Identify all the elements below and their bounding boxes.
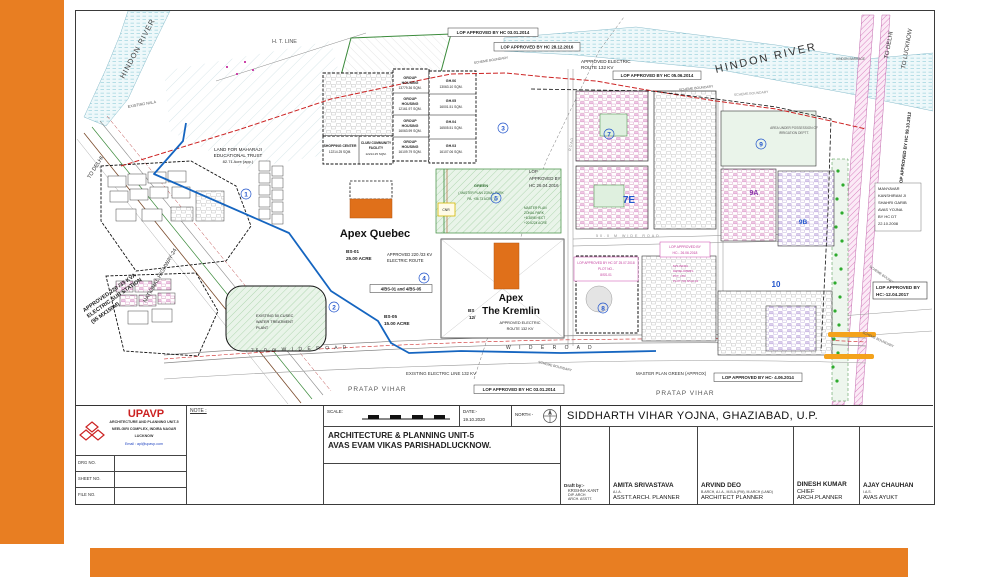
- lop-bottom2-label: LOP APPROVED BY HC- 4.06.2014: [714, 373, 802, 382]
- apex-quebec-plot: [350, 181, 392, 218]
- staff-role: CHIEF ARCH.PLANNER: [797, 489, 857, 501]
- svg-text:PA. +36.73 ACRE ): PA. +36.73 ACRE ): [467, 197, 494, 201]
- svg-text:4: 4: [422, 276, 426, 283]
- zonal-park-label: MASTER PLAN ZONAL PARK +8.3898 HECT +20.…: [524, 206, 547, 225]
- north-arrow-icon: [542, 408, 558, 424]
- svg-text:16063.99 SQM.: 16063.99 SQM.: [398, 129, 421, 133]
- svg-text:LOP APPROVED BY: LOP APPROVED BY: [669, 245, 702, 249]
- sector7-grid: [576, 91, 648, 161]
- staff-role: AVAS AYUKT: [863, 495, 931, 501]
- ht-line-label: H. T. LINE: [272, 39, 297, 45]
- svg-text:7: 7: [607, 132, 611, 139]
- svg-text:ROUTE 132 KV: ROUTE 132 KV: [507, 327, 534, 331]
- svg-text:WATER TREATMENT: WATER TREATMENT: [256, 320, 294, 324]
- svg-text:KANSHIRAM JI: KANSHIRAM JI: [878, 193, 906, 198]
- bs-combo-label: 4/BS-01 and 4/BS-05: [370, 285, 432, 293]
- sector9b-grid: [778, 171, 834, 246]
- manyavar-label: MANYAVAR KANSHIRAM JI SHAHRI GARIB AVAS …: [875, 183, 921, 231]
- org-line1: ARCHITECTURE AND PLANNING UNIT-5: [102, 421, 186, 425]
- site-plan-map: HINDON RIVER HINDON RIVER H. T. LINE EXI…: [76, 11, 933, 405]
- svg-text:EDUCATIONAL TRUST: EDUCATIONAL TRUST: [214, 153, 263, 158]
- svg-text:PVT. LTD: PVT. LTD: [673, 274, 686, 278]
- staff-name: DINESH KUMAR: [797, 481, 857, 488]
- road-vert-label: R O A D: [568, 137, 574, 151]
- svg-text:LOP APPROVED BY HC 03.01.2014: LOP APPROVED BY HC 03.01.2014: [457, 30, 530, 35]
- lop-approved-top3: LOP APPROVED BY HC 05.06.2014: [613, 71, 701, 80]
- svg-text:BS: BS: [468, 308, 474, 313]
- staff-name: AMITA SRIVASTAVA: [613, 482, 695, 489]
- to-delhi-left-label: TO DELHI: [87, 155, 106, 180]
- svg-text:HOUSING: HOUSING: [402, 81, 419, 85]
- svg-text:APPROVED ELECTRIC: APPROVED ELECTRIC: [500, 321, 541, 325]
- route220-label: APPROVED 220 /33 KV ELECTRIC ROUTE: [387, 252, 432, 263]
- scale-bar: [360, 412, 452, 422]
- slide: { "slide": { "accent_color": "#E87E22" }…: [0, 0, 1000, 577]
- svg-text:SHAHRI GARIB: SHAHRI GARIB: [878, 200, 907, 205]
- scheme-boundary-label-3: SCHEME BOUNDARY: [734, 90, 770, 97]
- staff-quals: I.A.S.: [863, 490, 931, 494]
- svg-text:13779.36 SQM.: 13779.36 SQM.: [398, 86, 421, 90]
- svg-text:10: 10: [772, 280, 781, 289]
- bs05-label: BS-05 15.00 ACRE: [384, 314, 410, 326]
- svg-text:LAND FOR MAHARAJI: LAND FOR MAHARAJI: [214, 147, 262, 152]
- site-plan-svg: HINDON RIVER HINDON RIVER H. T. LINE EXI…: [76, 11, 933, 405]
- svg-text:PLOT NO.8/GH-01: PLOT NO.8/GH-01: [673, 279, 699, 283]
- svg-text:12214.25 SQM.: 12214.25 SQM.: [365, 152, 386, 156]
- svg-text:HOUSING: HOUSING: [402, 102, 419, 106]
- svg-text:9A: 9A: [750, 190, 759, 197]
- svg-text:16107.06 SQM.: 16107.06 SQM.: [439, 150, 462, 154]
- svg-text:82.71 Acre (app.): 82.71 Acre (app.): [223, 159, 254, 164]
- apex-kremlin-label-2: The Kremlin: [482, 306, 540, 317]
- svg-text:+20.6224 ACRE: +20.6224 ACRE: [524, 221, 547, 225]
- svg-text:HOUSING: HOUSING: [402, 124, 419, 128]
- svg-text:APPROVED 220 /33 KV: APPROVED 220 /33 KV: [387, 252, 432, 257]
- column-plots: [259, 161, 283, 224]
- svg-text:5: 5: [494, 196, 498, 203]
- svg-text:9: 9: [759, 142, 763, 149]
- scale-date-cell: SCALE: DATE:- 19.10.2020 NORTH -: [324, 406, 561, 504]
- svg-text:PLANT: PLANT: [256, 326, 269, 330]
- draft-by-cell: Draft by:- KRISHNA KANT DIP. ARCH ARCH. …: [561, 427, 609, 504]
- drg-no-row: DRG NO.: [76, 456, 187, 472]
- apex-quebec-label: Apex Quebec: [340, 228, 410, 240]
- svg-text:HOUSING: HOUSING: [402, 145, 419, 149]
- svg-text:15.00 ACRE: 15.00 ACRE: [384, 321, 410, 326]
- lop-approved-top2: LOP APPROVED BY HC 28.12.2016: [494, 43, 580, 52]
- svg-text:13063.10 SQM.: 13063.10 SQM.: [439, 85, 462, 89]
- project-cell: SIDDHARTH VIHAR YOJNA, GHAZIABAD, U.P. D…: [561, 406, 933, 504]
- drg-no-label: DRG NO.: [78, 460, 96, 465]
- lop-approved-top1: LOP APPROVED BY HC 03.01.2014: [448, 28, 538, 37]
- pratap-vihar-label-2: PRATAP VIHAR: [656, 390, 715, 397]
- svg-text:GH.03: GH.03: [446, 144, 456, 148]
- svg-text:12/: 12/: [469, 315, 476, 320]
- existing-electric-bottom-label: EXISTING ELECTRIC LINE 132 KV: [406, 371, 476, 376]
- svg-text:BS-01: BS-01: [346, 249, 359, 254]
- svg-text:DEVELOPERS: DEVELOPERS: [673, 269, 693, 273]
- master-plan-green-label: MASTER PLAN GREEN (APPROX): [636, 371, 707, 376]
- lop-bottom1-label: LOP APPROVED BY HC 03.01.2014: [474, 385, 564, 394]
- svg-text:IRRIGATION DEPTT.: IRRIGATION DEPTT.: [779, 131, 809, 135]
- svg-text:SHOPPING CENTER: SHOPPING CENTER: [324, 144, 357, 148]
- svg-text:GH.06: GH.06: [446, 79, 456, 83]
- svg-text:22.10.2008: 22.10.2008: [878, 221, 899, 226]
- svg-text:APPROVED ELECTRIC: APPROVED ELECTRIC: [581, 59, 631, 64]
- svg-text:GREEN: GREEN: [474, 183, 488, 188]
- svg-text:16505.51 SQM.: 16505.51 SQM.: [439, 126, 462, 130]
- file-no-row: FILE NO.: [76, 488, 187, 504]
- draft-by-qual2: ARCH. ASSTT.: [564, 497, 607, 501]
- staff-name: ARVIND DEO: [701, 482, 791, 489]
- file-no-label: FILE NO.: [78, 492, 95, 497]
- date-cell: DATE:- 19.10.2020: [459, 406, 511, 427]
- svg-text:HC:-12.04.2017: HC:-12.04.2017: [876, 292, 909, 297]
- staff-cell-arvind: ARVIND DEO B.ARCH, A.I.A., M.B.A.(PM), M…: [697, 427, 793, 504]
- svg-text:ZONAL PARK: ZONAL PARK: [524, 211, 545, 215]
- sector7e-grid: [576, 166, 648, 229]
- north-cell: NORTH -: [511, 406, 561, 427]
- svg-text:APPROVED BY: APPROVED BY: [529, 176, 561, 181]
- svg-text:12161.97 SQM.: 12161.97 SQM.: [398, 107, 421, 111]
- svg-text:GH.05: GH.05: [446, 99, 456, 103]
- lop-right-vert-label: LOP APPROVED BY HC 09.10.2012: [898, 111, 912, 186]
- svg-text:1: 1: [244, 192, 248, 199]
- svg-text:GROUP: GROUP: [403, 76, 417, 80]
- existing-nala-label: EXISTING NALA: [127, 100, 156, 109]
- svg-text:ELECTRIC ROUTE: ELECTRIC ROUTE: [387, 258, 424, 263]
- water-treatment-green-area: [226, 286, 326, 351]
- svg-text:GH.04: GH.04: [446, 120, 456, 124]
- svg-text:M/S INFRA: M/S INFRA: [673, 264, 688, 268]
- svg-text:2: 2: [332, 305, 336, 312]
- svg-text:9B: 9B: [799, 219, 808, 226]
- sector9a-grid: [721, 169, 776, 241]
- approved-electric-route-label: APPROVED ELECTRIC ROUTE 132 KV: [581, 59, 631, 70]
- sector9-green: [721, 111, 816, 166]
- svg-text:LOP: LOP: [529, 169, 538, 174]
- svg-text:BS-05: BS-05: [384, 314, 397, 319]
- unit-line1: ARCHITECTURE & PLANNING UNIT-5: [328, 431, 491, 441]
- svg-text:AVAS YOJNA: AVAS YOJNA: [878, 207, 903, 212]
- sector-mid-grid: [654, 91, 716, 229]
- hindon-barrage-label: HINDON BARRAGE: [836, 57, 865, 61]
- svg-text:AREA UNDER POSSESSION OF: AREA UNDER POSSESSION OF: [770, 126, 818, 130]
- svg-text:PLOT NO.-: PLOT NO.-: [598, 267, 614, 271]
- svg-text:FACILITY: FACILITY: [369, 146, 384, 150]
- slide-left-accent-bar: [0, 0, 64, 544]
- cnr-label: CNR: [442, 208, 450, 212]
- wide-road-mid-label: W I D E R O A D: [506, 345, 595, 351]
- svg-text:4/BS-01 and 4/BS-05: 4/BS-01 and 4/BS-05: [381, 287, 422, 292]
- staff-cell-dinesh: DINESH KUMAR CHIEF ARCH.PLANNER: [793, 427, 859, 504]
- title-block: UPAVP ARCHITECTURE AND PLANNING UNIT-5 N…: [76, 405, 933, 503]
- staff-name: AJAY CHAUHAN: [863, 482, 931, 489]
- svg-text:LOP APPROVED BY HC DT 25.07.20: LOP APPROVED BY HC DT 25.07.2018: [577, 261, 634, 265]
- svg-text:+8.3898 HECT: +8.3898 HECT: [524, 216, 545, 220]
- svg-text:LOP APPROVED BY HC- 4.06.2014: LOP APPROVED BY HC- 4.06.2014: [722, 375, 794, 380]
- svg-text:8: 8: [601, 306, 605, 313]
- svg-text:12214.25 SQM.: 12214.25 SQM.: [329, 150, 351, 154]
- staff-role: ASSTT.ARCH. PLANNER: [613, 495, 695, 501]
- scale-label: SCALE:: [327, 409, 343, 414]
- slide-bottom-accent-bar: [90, 548, 908, 577]
- pratap-vihar-label-1: PRATAP VIHAR: [348, 386, 407, 393]
- svg-text:MANYAVAR: MANYAVAR: [878, 186, 900, 191]
- svg-text:7E: 7E: [623, 195, 636, 206]
- lop-25-07-2018-label: LOP APPROVED BY HC DT 25.07.2018 PLOT NO…: [574, 257, 638, 281]
- staff-role: ARCHITECT PLANNER: [701, 495, 791, 501]
- svg-text:8/SS-01: 8/SS-01: [600, 273, 612, 277]
- svg-text:HC:- 26.06.2018: HC:- 26.06.2018: [673, 251, 698, 255]
- note-cell: NOTE :: [187, 406, 324, 504]
- svg-text:LOP APPROVED BY HC 28.12.2016: LOP APPROVED BY HC 28.12.2016: [501, 45, 574, 50]
- svg-text:16109.79 SQM.: 16109.79 SQM.: [398, 150, 421, 154]
- bs01-label: BS-01 25.00 ACRE: [346, 249, 372, 261]
- staff-cell-amita: AMITA SRIVASTAVA A.I.A. ASSTT.ARCH. PLAN…: [609, 427, 697, 504]
- svg-text:CLUB/ COMMUNITY: CLUB/ COMMUNITY: [361, 141, 392, 145]
- svg-text:GROUP: GROUP: [403, 97, 417, 101]
- staff-quals: A.I.A.: [613, 490, 695, 494]
- project-title: SIDDHARTH VIHAR YOJNA, GHAZIABAD, U.P.: [561, 406, 933, 427]
- org-line2: NEELGIRI COMPLEX, INDIRA NAGAR: [102, 428, 186, 432]
- date-label: DATE:-: [463, 409, 477, 414]
- unit-name: ARCHITECTURE & PLANNING UNIT-5 AVAS EVAM…: [328, 431, 491, 452]
- sector10-grid: [718, 291, 832, 355]
- drawing-sheet: HINDON RIVER HINDON RIVER H. T. LINE EXI…: [75, 10, 935, 505]
- org-cell: UPAVP ARCHITECTURE AND PLANNING UNIT-5 N…: [76, 406, 187, 504]
- staff-quals: B.ARCH, A.I.A., M.B.A.(PM), M.ARCH (LAND…: [701, 490, 791, 494]
- svg-text:HC 26.04.2016: HC 26.04.2016: [529, 183, 559, 188]
- svg-text:MASTER PLAN: MASTER PLAN: [524, 206, 547, 210]
- svg-text:GROUP: GROUP: [403, 140, 417, 144]
- svg-text:LOP APPROVED BY HC 03.01.2014: LOP APPROVED BY HC 03.01.2014: [483, 387, 556, 392]
- org-name: UPAVP: [110, 408, 182, 420]
- svg-text:LOP APPROVED BY HC 05.06.2014: LOP APPROVED BY HC 05.06.2014: [621, 73, 694, 78]
- svg-text:GROUP: GROUP: [403, 119, 417, 123]
- lop-26-06-2018-label: LOP APPROVED BY HC:- 26.06.2018: [660, 242, 710, 257]
- note-label: NOTE :: [190, 408, 207, 414]
- road-50m-label: 50.0 M WIDE ROAD: [596, 234, 661, 238]
- svg-text:ROUTE 132 KV: ROUTE 132 KV: [581, 65, 614, 70]
- staff-cell-ajay: AJAY CHAUHAN I.A.S. AVAS AYUKT: [859, 427, 933, 504]
- svg-text:BY HC DT: BY HC DT: [878, 214, 897, 219]
- scheme-boundary-label-1: SCHEME BOUNDARY: [474, 56, 510, 65]
- sheet-no-row: SHEET NO.: [76, 472, 187, 488]
- date-value: 19.10.2020: [463, 417, 485, 422]
- north-label: NORTH -: [515, 412, 533, 417]
- svg-text:25.00 ACRE: 25.00 ACRE: [346, 256, 372, 261]
- org-line3: LUCKNOW: [102, 435, 186, 439]
- lop-12-04-2017-label: LOP APPROVED BY HC:-12.04.2017: [873, 282, 927, 299]
- sheet-no-label: SHEET NO.: [78, 476, 101, 481]
- svg-text:3: 3: [501, 126, 505, 133]
- apex-kremlin-label-1: Apex: [499, 293, 524, 304]
- svg-text:16001.51 SQM.: 16001.51 SQM.: [439, 105, 462, 109]
- org-email: Email : apl@upavp.com: [102, 443, 186, 447]
- unit-line2: AVAS EVAM VIKAS PARISHADLUCKNOW.: [328, 441, 491, 451]
- svg-text:LOP APPROVED BY: LOP APPROVED BY: [876, 285, 920, 290]
- svg-text:EXISTING 50 CUSEC: EXISTING 50 CUSEC: [256, 314, 294, 318]
